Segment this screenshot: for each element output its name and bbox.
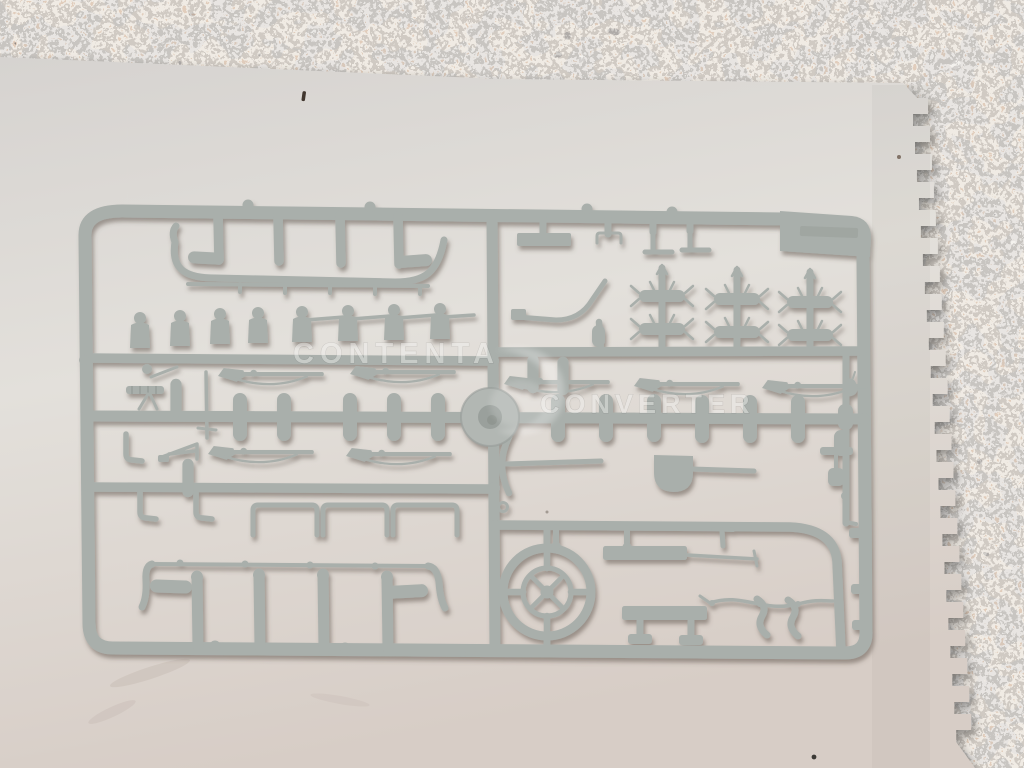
photo-canvas: CONTENTA CONVERTER — [0, 0, 1024, 768]
paper-edge-shade — [872, 85, 930, 768]
watermark-text-line2: CONVERTER — [540, 389, 755, 419]
photo-svg: CONTENTA CONVERTER — [0, 0, 1024, 768]
watermark-text-line1: CONTENTA — [293, 338, 500, 370]
